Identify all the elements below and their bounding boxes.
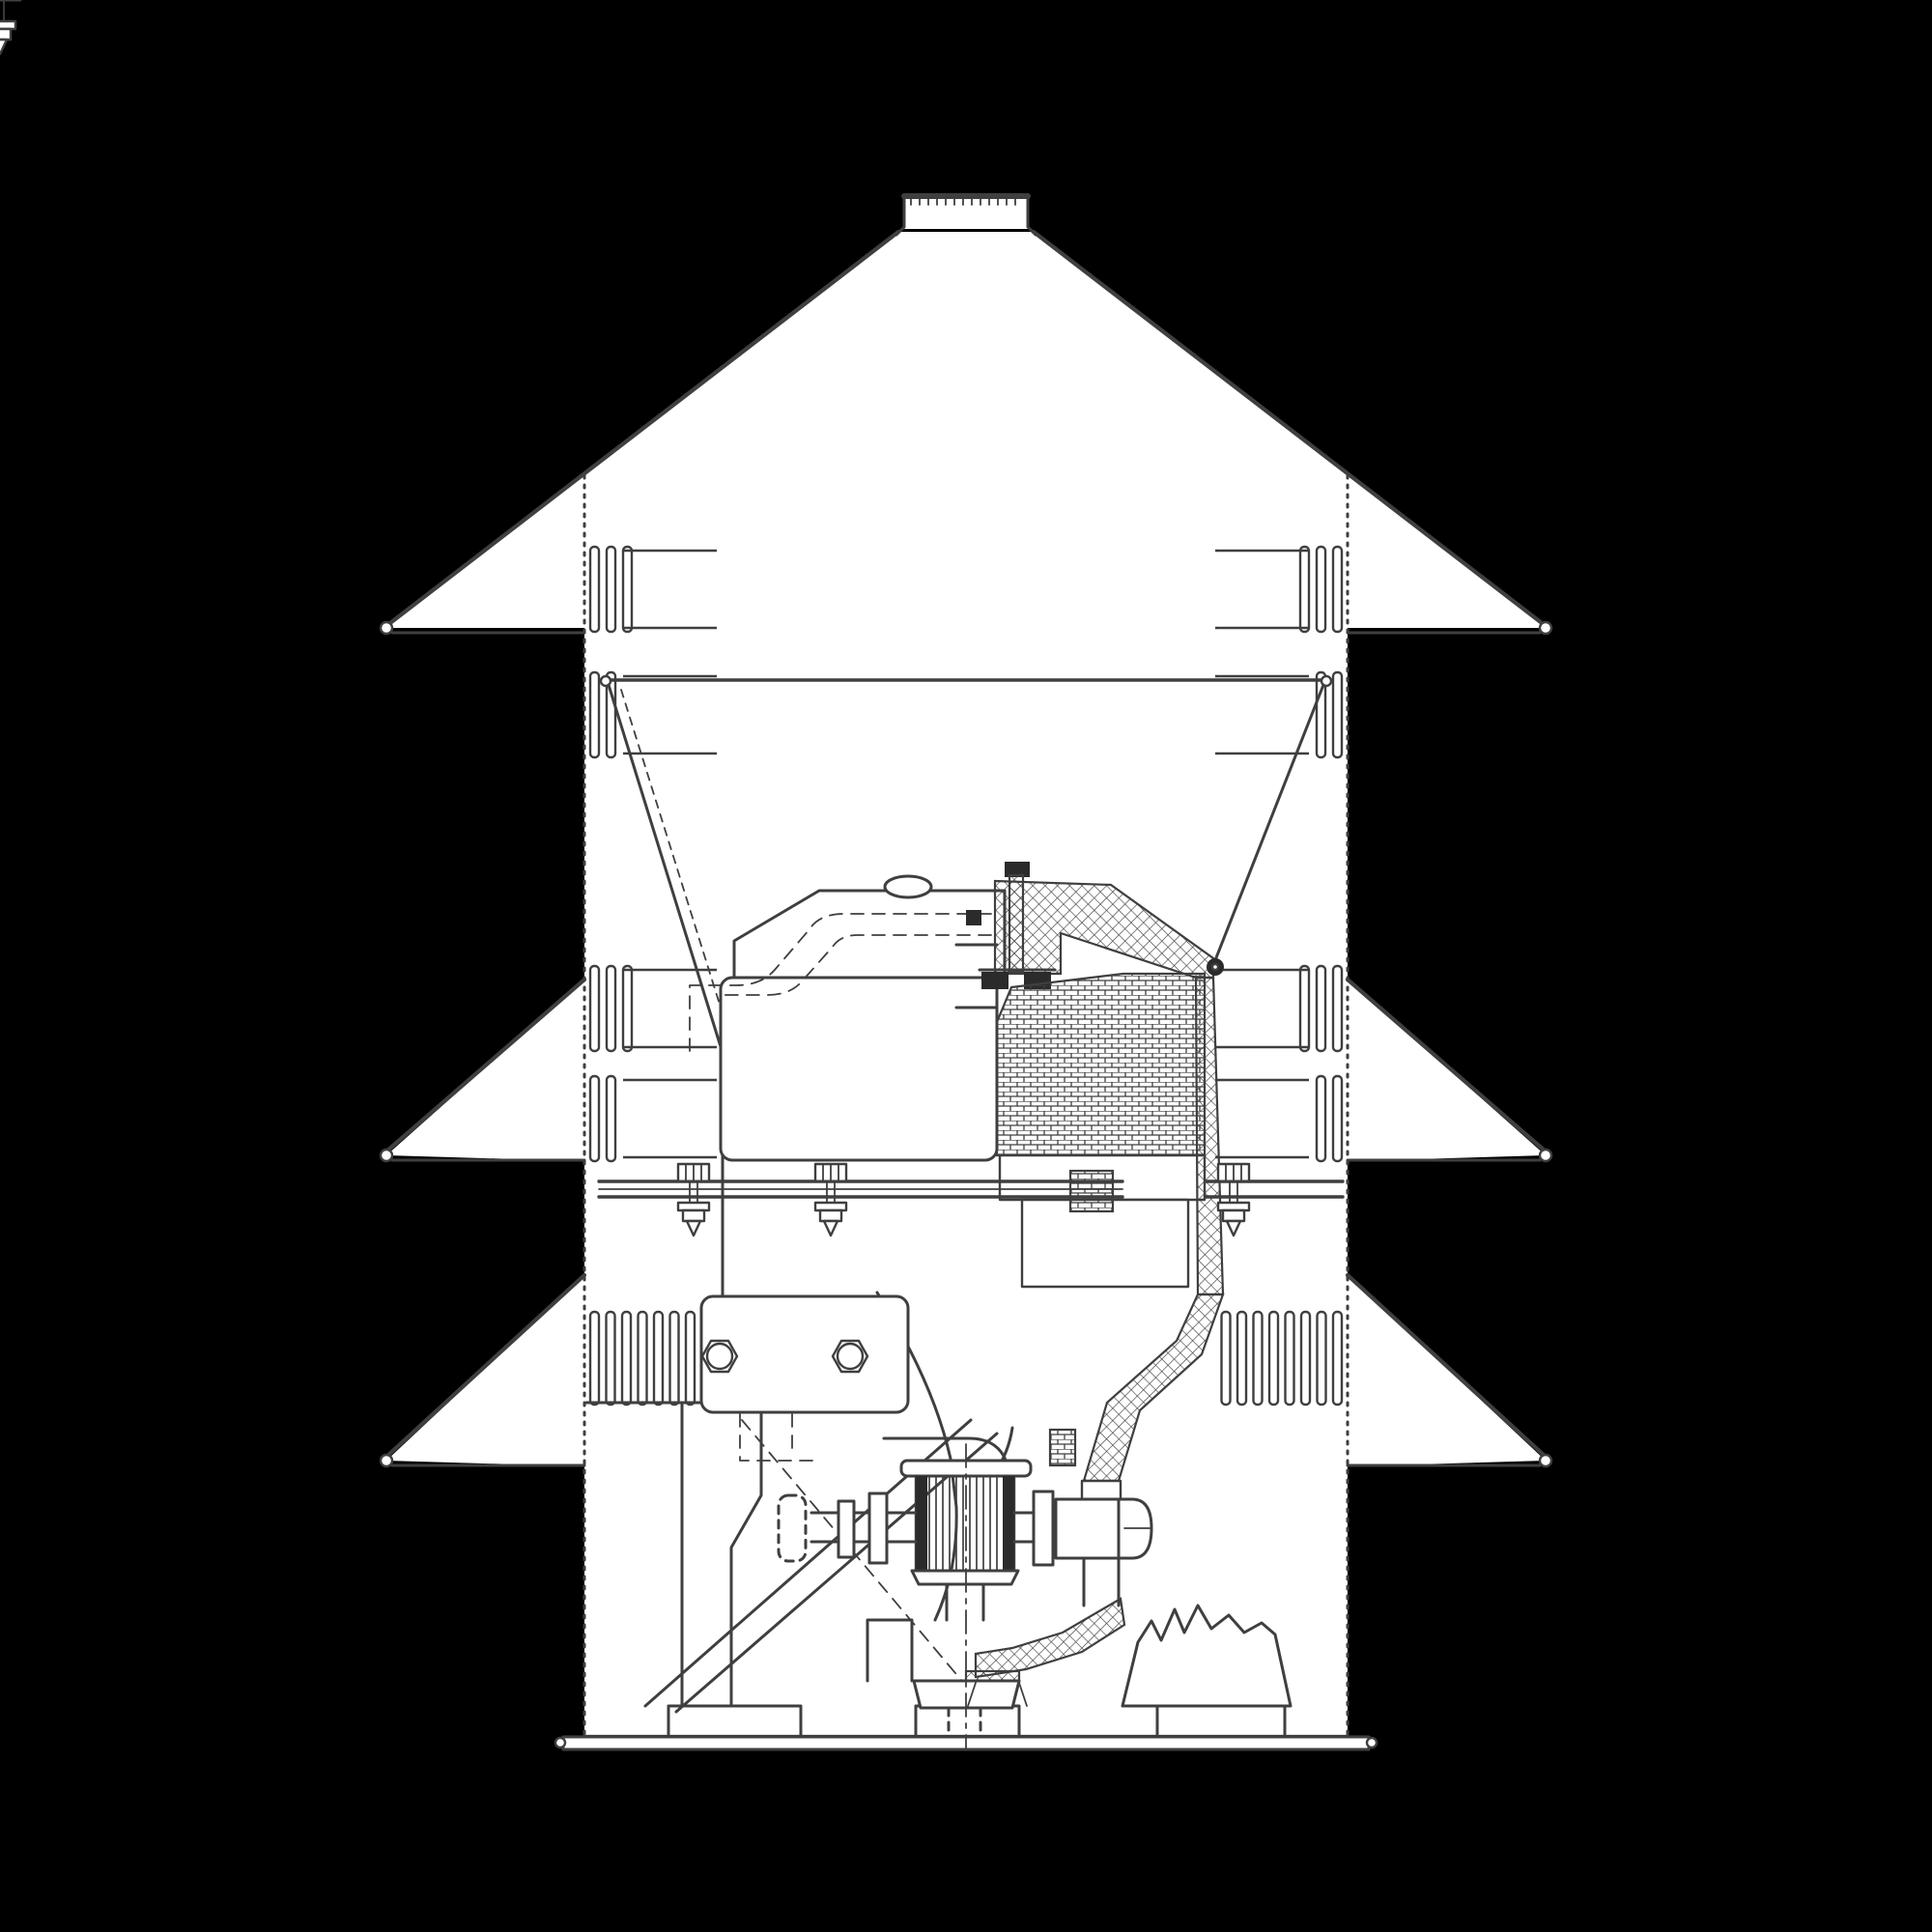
eave-rivet: [1540, 622, 1551, 634]
eave-rivet: [381, 1150, 392, 1161]
vent-slot: [1286, 1312, 1294, 1405]
vent-slot: [607, 966, 615, 1051]
housing-body: [721, 978, 997, 1160]
vent-slot: [1300, 547, 1309, 632]
vent-slot: [1269, 1312, 1278, 1405]
motor-band-right: [1003, 1476, 1014, 1571]
plate-hex-bolt-1: [702, 1341, 737, 1372]
eave-rivet: [381, 622, 392, 634]
vent-slot: [1237, 1312, 1246, 1405]
vent-slot: [686, 1312, 695, 1405]
vent-slot: [1317, 966, 1325, 1051]
flange-left-2: [838, 1501, 854, 1557]
vent-slot: [1333, 672, 1342, 757]
flange-left-1: [869, 1493, 887, 1563]
base-end-left: [555, 1738, 565, 1747]
foot-right: [1157, 1706, 1285, 1739]
foot-left: [668, 1706, 801, 1739]
coupling-block: [1056, 1499, 1119, 1558]
motor-band-left: [916, 1476, 927, 1571]
vent-slot: [590, 966, 599, 1051]
vent-slot: [1333, 966, 1342, 1051]
bolt-shaft: [1009, 875, 1023, 972]
gasket-section: [1050, 1430, 1075, 1465]
vent-slot: [1333, 547, 1342, 632]
eave-rivet: [381, 1455, 392, 1466]
motor-bottom-plate: [912, 1571, 1018, 1584]
cutaway-diagram: [0, 0, 1932, 1932]
latch-block: [966, 910, 981, 925]
flange-right: [1034, 1492, 1053, 1565]
vent-slot: [590, 1312, 599, 1405]
plate-hex-bolt-2: [833, 1341, 867, 1372]
motor-fins: [916, 1476, 1014, 1571]
vent-slot: [607, 547, 615, 632]
vent-slot: [623, 547, 632, 632]
vent-slot: [1318, 1312, 1326, 1405]
stator-laminations: [997, 974, 1205, 1155]
stator-core-section: [997, 974, 1205, 1287]
vent-slot: [590, 672, 599, 757]
vent-slot: [623, 966, 632, 1051]
eave-rivet: [1540, 1150, 1551, 1161]
vent-slot: [590, 547, 599, 632]
bolt-flange-left: [981, 972, 1009, 989]
vent-slot: [1317, 1076, 1325, 1161]
foot-center: [916, 1706, 1019, 1739]
vent-slot: [1300, 966, 1309, 1051]
dome-bump: [885, 876, 931, 897]
vent-slot: [607, 1312, 615, 1405]
vent-slot: [1333, 1076, 1342, 1161]
eave-rivet: [1540, 1455, 1551, 1466]
vent-slot: [607, 1076, 615, 1161]
vent-slot: [590, 1076, 599, 1161]
vent-slot: [1301, 1312, 1310, 1405]
stator-frame-step2: [1022, 1200, 1188, 1287]
base-end-right: [1367, 1738, 1377, 1747]
vent-slot: [622, 1312, 631, 1405]
vent-slot: [1317, 547, 1325, 632]
vent-slot: [670, 1312, 679, 1405]
vent-slot: [1333, 1312, 1342, 1405]
bolt-nut: [0, 29, 11, 40]
screenshot-canvas: [0, 0, 1932, 1932]
bar-end-block: [1070, 1171, 1113, 1211]
vent-slot: [654, 1312, 663, 1405]
wedge-tip-center: [1212, 964, 1218, 970]
vent-slot: [1222, 1312, 1231, 1405]
vent-slot: [639, 1312, 647, 1405]
vent-slot: [1254, 1312, 1263, 1405]
